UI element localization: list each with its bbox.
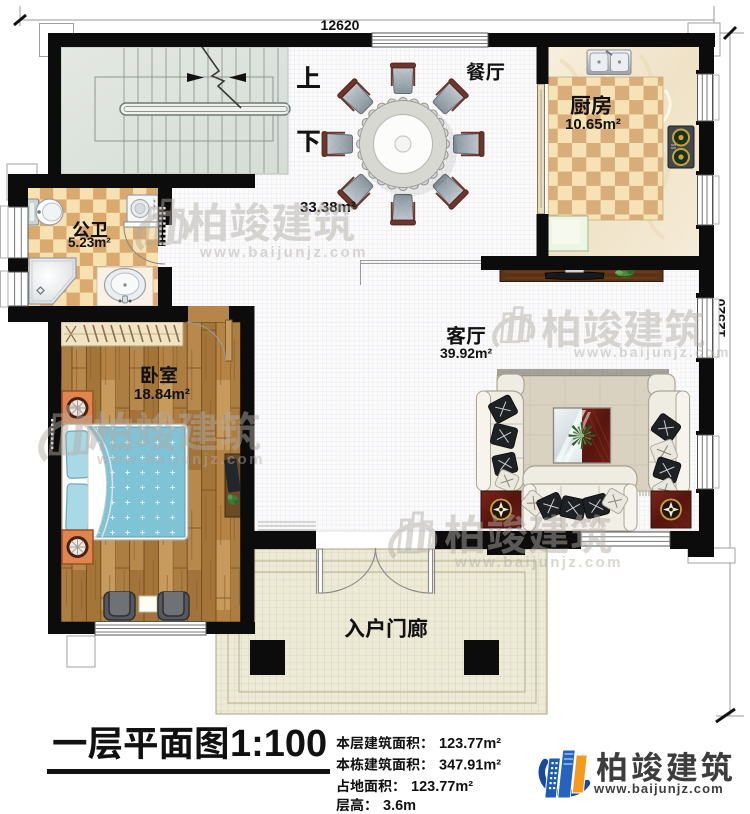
svg-text:www.baijunjz.com: www.baijunjz.com (96, 451, 265, 468)
svg-text:www.baijunjz.com: www.baijunjz.com (454, 554, 623, 571)
svg-text:1:100: 1:100 (230, 723, 327, 765)
svg-text:347.91m²: 347.91m² (439, 758, 501, 774)
svg-text:5.23m²: 5.23m² (68, 235, 111, 250)
svg-text:10.65m²: 10.65m² (565, 116, 621, 133)
svg-text:www.baijunjz.com: www.baijunjz.com (593, 781, 724, 796)
svg-text:12620: 12620 (321, 17, 360, 33)
svg-text:123.77m²: 123.77m² (439, 736, 501, 752)
svg-text:www.baijunjz.com: www.baijunjz.com (199, 244, 368, 261)
svg-text:3.6m: 3.6m (383, 798, 416, 814)
svg-text:www.baijunjz.com: www.baijunjz.com (573, 344, 731, 360)
svg-text:39.92m²: 39.92m² (440, 345, 492, 361)
svg-text:18.84m²: 18.84m² (134, 386, 190, 403)
svg-text:123.77m²: 123.77m² (411, 779, 473, 795)
